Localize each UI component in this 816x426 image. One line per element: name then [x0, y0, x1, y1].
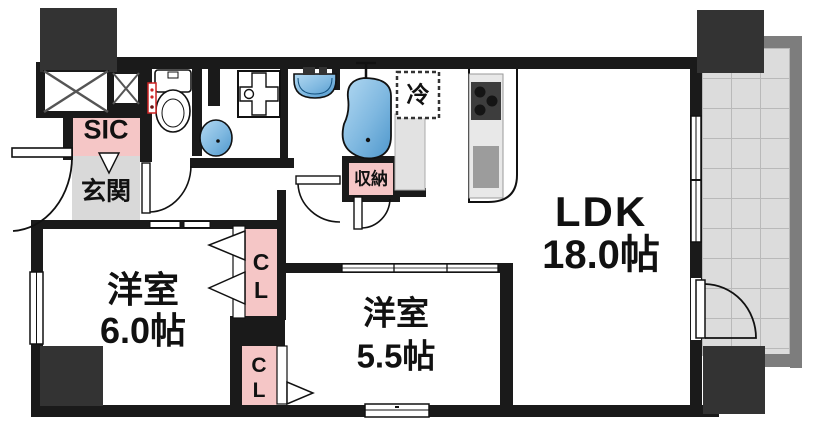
bedroom2-name-label: 洋室 [363, 297, 429, 330]
fridge-space-label: 冷 [407, 84, 430, 107]
shoe-closet-label: SIC [83, 117, 128, 144]
floor-plan: LDK 18.0帖 洋室 6.0帖 洋室 5.5帖 SIC 玄関 収納 冷 CL… [0, 0, 816, 426]
bedroom1-window [30, 272, 43, 344]
closet1-label: CL [252, 248, 270, 304]
toilet-icon [148, 70, 191, 132]
closet1-door-icon2 [209, 272, 245, 304]
balcony [700, 36, 802, 368]
closet1-door-icon [209, 231, 245, 260]
entrance-label: 玄関 [81, 180, 131, 205]
ldk-name-label: LDK [555, 191, 647, 233]
bedroom1-name-label: 洋室 [107, 272, 179, 308]
balcony-frame-right [790, 36, 802, 368]
vanity-basin-icon [294, 67, 336, 98]
storage-label: 収納 [354, 171, 388, 188]
kitchen-cabinet [395, 114, 425, 190]
washroom-door [296, 176, 340, 222]
bedroom2-sliding-partition [342, 264, 498, 272]
bedroom2-area-label: 5.5帖 [357, 340, 436, 373]
ldk-window [691, 116, 701, 242]
kitchen-sink-icon [473, 146, 499, 188]
pillar-bottom-right [703, 346, 765, 414]
bedroom1-sliding-door [150, 222, 210, 228]
closet2-label: CL [251, 353, 267, 403]
entrance-door [12, 148, 72, 231]
bedroom2-window [365, 404, 429, 417]
bathtub-icon [343, 63, 391, 158]
pillar-top-right [697, 10, 764, 73]
bedroom1-area-label: 6.0帖 [100, 313, 186, 349]
pillar-top-left [40, 8, 117, 72]
washing-machine-pan-icon [238, 71, 280, 117]
ldk-area-label: 18.0帖 [542, 235, 660, 275]
washbasin-icon [200, 120, 232, 156]
closet2-door-icon [287, 382, 313, 404]
toilet-door [142, 163, 191, 213]
pillar-bottom-left [40, 346, 103, 406]
